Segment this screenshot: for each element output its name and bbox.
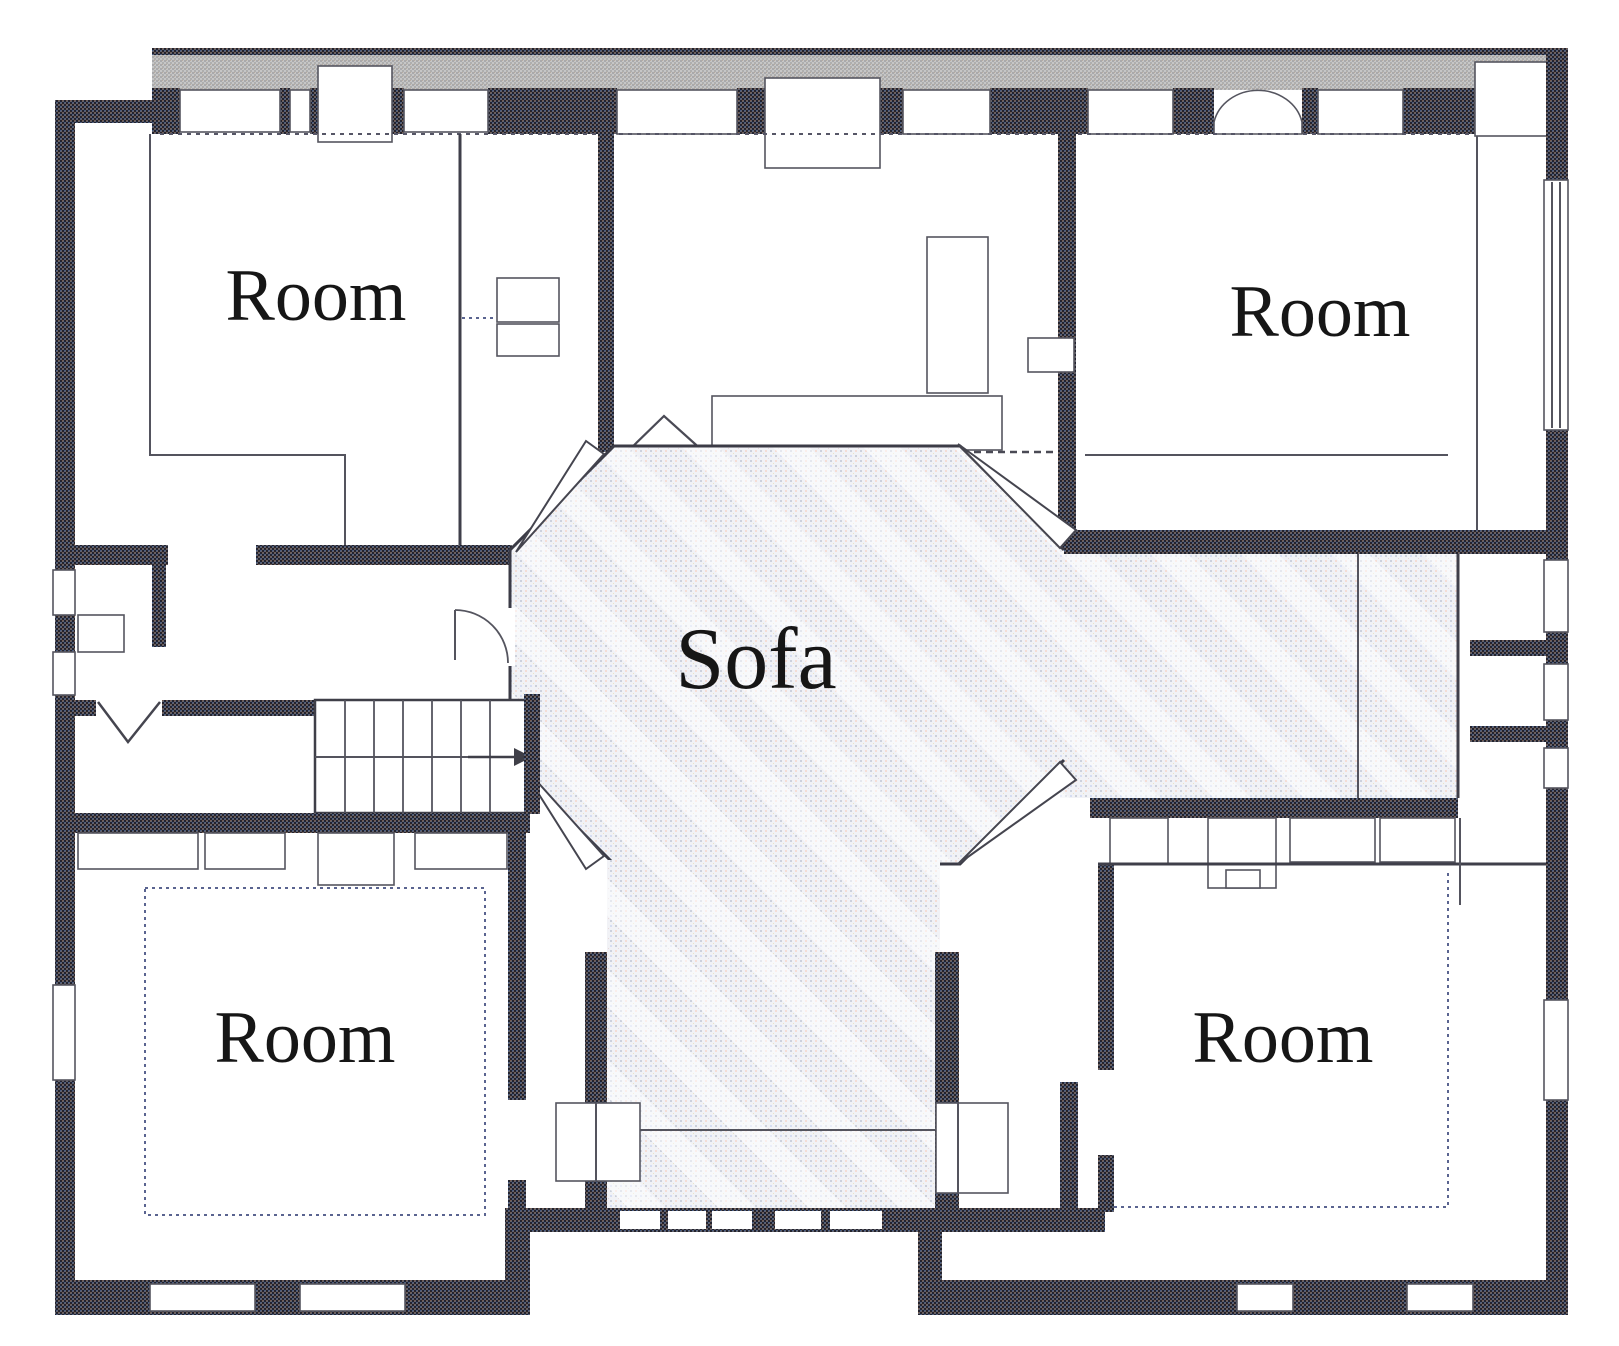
corridor-floor-stripes (1060, 554, 1458, 798)
room-west-wall (1098, 864, 1114, 1212)
door-opening (505, 608, 515, 666)
window (1318, 90, 1403, 134)
bench-furniture (712, 396, 1002, 450)
closet-shelf (497, 278, 559, 322)
chimney-step (1226, 870, 1260, 888)
window (1407, 1284, 1473, 1311)
window (53, 652, 75, 695)
bay-stub-wall (1470, 640, 1546, 656)
window (180, 90, 280, 132)
door-panel (78, 833, 198, 869)
stair-side-wall (524, 694, 540, 814)
closet (78, 615, 124, 652)
porch-east-wall (918, 1208, 942, 1315)
door-panel (205, 833, 285, 869)
stair-lower-wall (55, 813, 530, 833)
window (150, 1284, 255, 1311)
radiator (1028, 338, 1074, 372)
door-panel (1380, 818, 1455, 862)
chimney-breast (765, 78, 880, 168)
porch-west-wall (505, 1208, 530, 1315)
left-wall (55, 100, 75, 1315)
window (1088, 90, 1173, 134)
door-panel (1290, 818, 1375, 862)
room-top-right-label: Room (1230, 271, 1411, 353)
room-top-left-label: Room (226, 255, 407, 337)
door-opening (1098, 1070, 1114, 1155)
window (617, 90, 737, 134)
window (290, 90, 310, 132)
window (53, 570, 75, 615)
window (404, 90, 488, 132)
vestibule-divider-wall (55, 545, 512, 565)
window (300, 1284, 405, 1311)
window (903, 90, 990, 134)
closet-shelf (497, 324, 559, 356)
bay-stub-wall (1470, 726, 1546, 742)
corridor-south-wall (1090, 798, 1458, 818)
room-bottom-right-label: Room (1193, 997, 1374, 1079)
wardrobe-furniture (927, 237, 988, 393)
room-south-wall (1062, 530, 1546, 554)
door-panel (318, 833, 394, 885)
strip-wall (1060, 1082, 1078, 1212)
corridor-floor-stripes (607, 860, 940, 1210)
room-east-wall (1058, 90, 1076, 532)
door-panel (415, 833, 507, 869)
door-panel (556, 1103, 640, 1181)
wall-stub (152, 565, 166, 647)
corner-pavilion (1475, 62, 1551, 136)
entry-sidelights (620, 1211, 882, 1229)
room-bottom-left-label: Room (215, 997, 396, 1079)
bottom-wall-left (55, 1280, 530, 1315)
window (1237, 1284, 1293, 1311)
door-panel (936, 1103, 1008, 1193)
door-opening (508, 1100, 526, 1180)
top-wall-band-edge (152, 48, 1568, 55)
door-opening (168, 545, 256, 565)
chimney-breast (318, 66, 392, 142)
floor-plan: Room Room Sofa Room Room (0, 0, 1619, 1346)
door-panel (1110, 818, 1168, 864)
middle-room-west-wall (598, 90, 614, 452)
window (53, 985, 75, 1080)
hall-sofa-label: Sofa (675, 611, 836, 708)
